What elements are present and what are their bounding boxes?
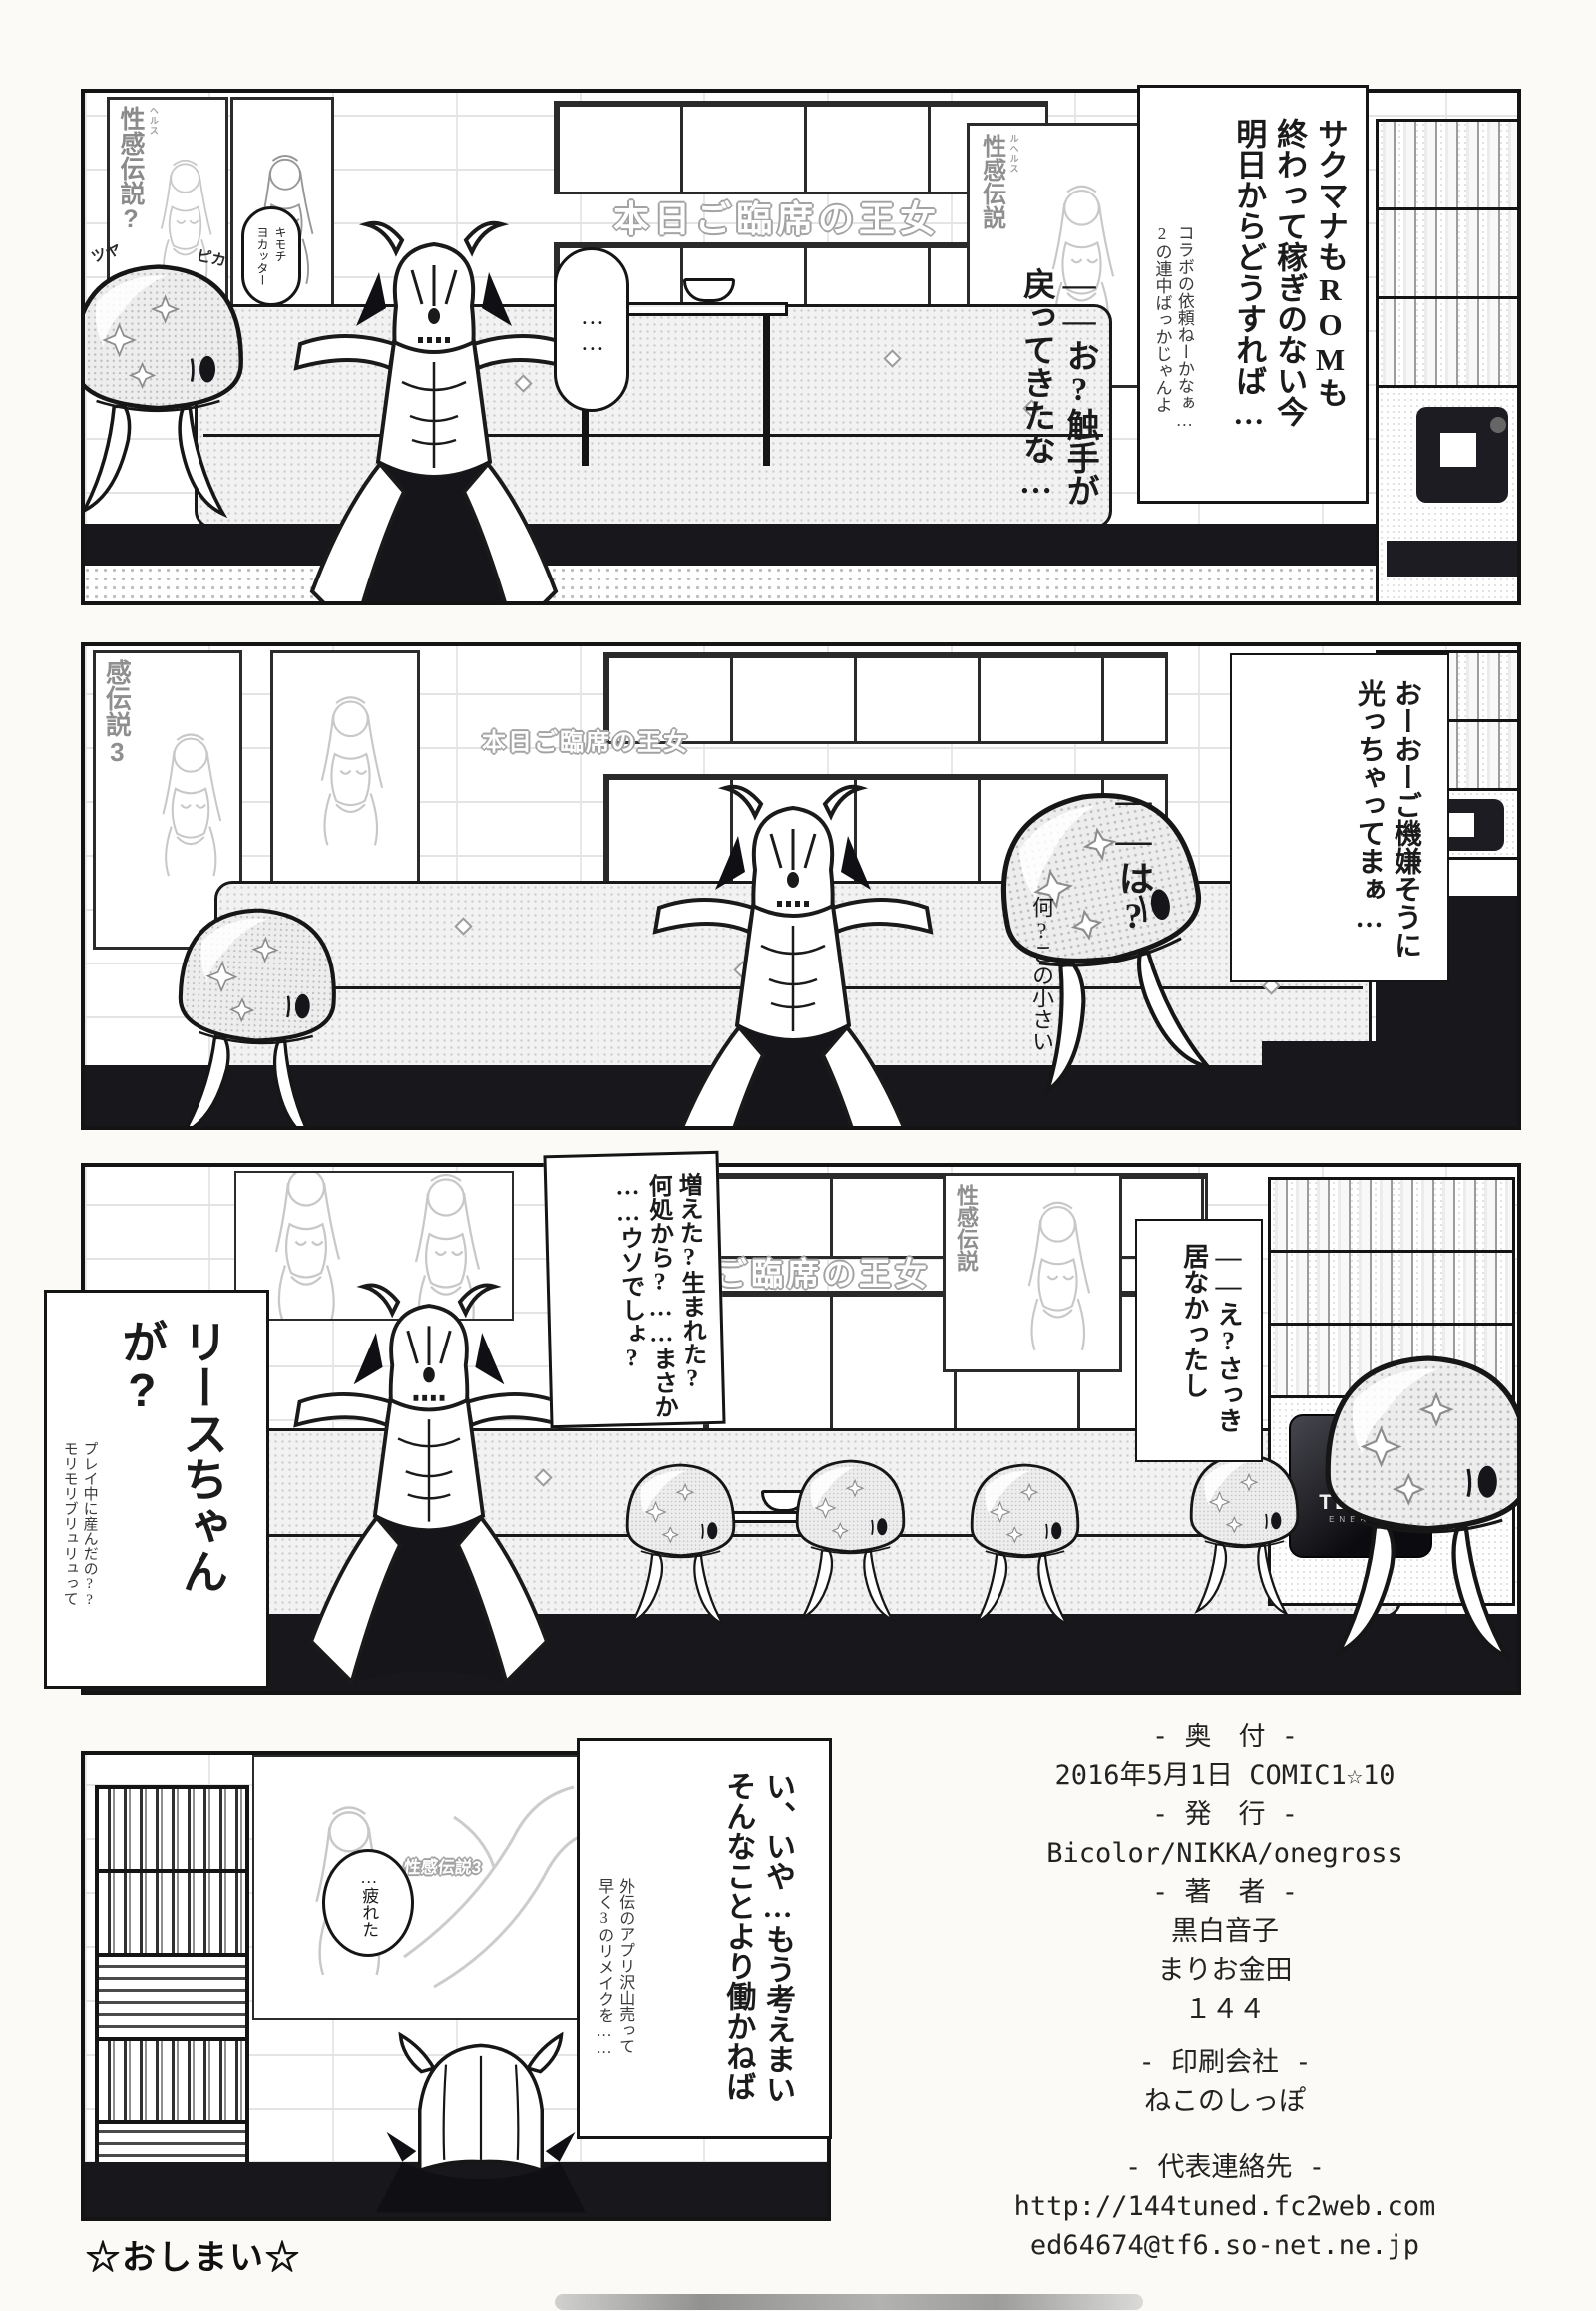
demon-character [284, 210, 584, 605]
poster-logo-text: 性感伝説3 [403, 1853, 483, 1878]
aside-panel2: 何?この小さい [1027, 896, 1056, 1052]
colophon-line: - 代表連絡先 - [946, 2148, 1504, 2187]
tired-text: …疲れた [357, 1868, 379, 1938]
slime-character-big [936, 741, 1280, 1125]
poster-title: 感伝説3 [100, 659, 134, 767]
poster-gaiden: 性感伝説3 [252, 1755, 582, 2020]
vending-shelf [1379, 122, 1521, 210]
poster-dragon-art [394, 1757, 582, 2017]
poster-title: 性感伝説 [952, 1184, 981, 1272]
table-leg [763, 316, 770, 466]
silence-bubble: …… [554, 247, 629, 412]
vending-bin [1387, 541, 1518, 577]
headline-small-text: プレイ中に産んだの?? モリモリブリュリュって [59, 1441, 99, 1676]
couch-arm-shadow [1262, 1041, 1521, 1130]
speech-box-panel3: ——え?さっき 居なかったし [1135, 1219, 1263, 1462]
slime-character [81, 240, 255, 532]
vending-shelf [1271, 1180, 1512, 1253]
slime-speech-bubble: キモチ ヨカッター [241, 206, 301, 306]
vending-slot [1440, 433, 1476, 467]
poster-ruby: ヘルス [147, 106, 159, 233]
bookshelf-row [99, 2041, 245, 2124]
speech-text: おーおーご機嫌そうに 光っちゃってまぁ… [1350, 679, 1423, 959]
monologue-small-text: コラボの依頼ねーかなぁ… 2の連中ばっかじゃんよ [1150, 224, 1195, 489]
monologue-small-text: 外伝のアプリ沢山売って 早く3のリメイクを…… [594, 1878, 635, 2122]
slime-1 [618, 1448, 743, 1635]
vending-shelf [1379, 210, 1521, 299]
vending-coin-button [1490, 417, 1506, 433]
couch-sparkle [883, 349, 901, 367]
colophon-line: Bicolor/NIKKA/onegross [946, 1834, 1504, 1873]
manga-page: 本日ご臨席の王女 ヘルス 性感伝説? ルヘルス 性感伝説 [0, 0, 1596, 2311]
bookshelf-row [99, 1789, 245, 1873]
poster-seikan: 性感伝説 [943, 1173, 1122, 1372]
colophon-line: ねこのしっぽ [946, 2082, 1504, 2120]
panel-3: 本日ご臨席の王女 性感伝説 T [81, 1163, 1521, 1695]
colophon: - 奥 付 - 2016年5月1日 COMIC1☆10 - 発 行 - Bico… [946, 1718, 1504, 2265]
monologue-text: い、いや…もう考えまい そんなことより働かねば [718, 1771, 797, 2104]
scan-artifact-bar [555, 2294, 1143, 2310]
colophon-line: - 奥 付 - [946, 1718, 1504, 1756]
vending-shelf [1271, 1253, 1512, 1326]
silence-text: …… [576, 304, 607, 356]
poster-title: ヘルス 性感伝説? [114, 106, 159, 233]
slime-4 [1182, 1438, 1307, 1625]
speech-box-panel2: おーおーご機嫌そうに 光っちゃってまぁ… [1230, 653, 1449, 982]
speech-text: ——え?さっき 居なかったし [1176, 1243, 1245, 1433]
slime-3 [963, 1448, 1087, 1635]
colophon-line: 黒白音子 [946, 1912, 1504, 1951]
colophon-line: ed64674@tf6.so-net.ne.jp [946, 2226, 1504, 2265]
balloon-panel3: 増えた?生まれた? 何処から?……まさか ……ウソでしょ? [543, 1151, 725, 1429]
vending-shelf [1379, 299, 1521, 388]
colophon-line: まりお金田 [946, 1951, 1504, 1990]
headline-box-panel3: リースちゃんが? プレイ中に産んだの?? モリモリブリュリュって [44, 1290, 269, 1689]
demon-character-startled [643, 774, 943, 1130]
poster-ruby: ルヘルス [1007, 134, 1019, 229]
colophon-line: - 発 行 - [946, 1795, 1504, 1834]
colophon-line: - 著 者 - [946, 1873, 1504, 1912]
slime-2 [788, 1444, 913, 1631]
end-mark: ☆おしまい☆ [86, 2230, 301, 2279]
slime-character-small [162, 883, 350, 1130]
demon-character-back [376, 2017, 586, 2221]
colophon-line: １４４ [946, 1990, 1504, 2029]
slime-speech-text: キモチ ヨカッター [253, 226, 289, 286]
vending-machine [1376, 119, 1521, 605]
colophon-line: http://144tuned.fc2web.com [946, 2187, 1504, 2226]
poster-girl-art [1000, 1180, 1115, 1372]
wall-banner: 本日ご臨席の王女 [482, 722, 689, 757]
monologue-text: サクマナもROMも 終わって稼ぎのない今 明日からどうすれば… [1227, 118, 1350, 431]
demon-character [284, 1271, 574, 1690]
monologue-box-panel4: い、いや…もう考えまい そんなことより働かねば 外伝のアプリ沢山売って 早く3の… [577, 1738, 832, 2139]
poster-title: ルヘルス 性感伝説 [976, 134, 1019, 229]
speech-panel1: ——お?触手が 戻ってきたな… [1013, 267, 1100, 507]
bookshelf-row [99, 1957, 245, 2041]
tired-bubble: …疲れた [322, 1849, 414, 1957]
bookshelf [95, 1785, 249, 2221]
monologue-box-1: サクマナもROMも 終わって稼ぎのない今 明日からどうすれば… コラボの依頼ねー… [1137, 85, 1369, 504]
reply-panel2: ——は? [1109, 780, 1157, 936]
colophon-line: 2016年5月1日 COMIC1☆10 [946, 1756, 1504, 1795]
colophon-line: - 印刷会社 - [946, 2043, 1504, 2082]
couch-sparkle [454, 917, 472, 935]
poster-girl-art [293, 657, 408, 887]
slime-big [1311, 1327, 1521, 1678]
balloon-text: 増えた?生まれた? 何処から?……まさか ……ウソでしょ? [612, 1172, 708, 1419]
wall-banner: 本日ご臨席の王女 [613, 191, 941, 242]
headline-text: リースちゃんが? [112, 1319, 232, 1686]
bookshelf-row [99, 1873, 245, 1957]
